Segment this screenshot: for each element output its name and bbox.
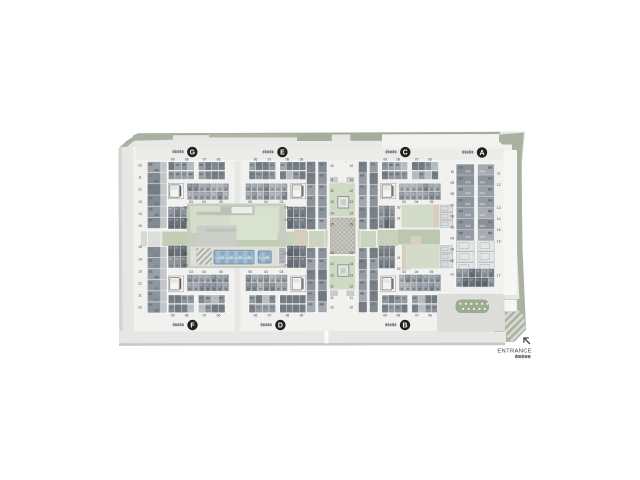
svg-text:16: 16 (497, 239, 501, 243)
svg-text:15: 15 (330, 223, 334, 227)
svg-text:14: 14 (138, 257, 142, 261)
svg-text:02: 02 (450, 259, 454, 263)
svg-text:07: 07 (268, 313, 272, 317)
svg-text:05: 05 (430, 200, 434, 204)
svg-text:06: 06 (450, 214, 454, 218)
svg-text:03: 03 (280, 270, 284, 274)
svg-text:07: 07 (203, 158, 207, 162)
svg-text:07: 07 (415, 158, 419, 162)
svg-text:13: 13 (138, 200, 142, 204)
svg-text:10: 10 (330, 306, 334, 310)
svg-text:14: 14 (349, 211, 353, 215)
svg-text:13: 13 (330, 200, 334, 204)
svg-text:15: 15 (349, 251, 353, 255)
svg-text:09: 09 (171, 313, 175, 317)
svg-text:10: 10 (349, 164, 353, 168)
svg-text:13: 13 (349, 200, 353, 204)
svg-text:14: 14 (497, 217, 501, 221)
svg-text:05: 05 (248, 270, 252, 274)
svg-text:15: 15 (497, 228, 501, 232)
svg-text:04: 04 (202, 200, 206, 204)
svg-text:07: 07 (450, 203, 454, 207)
svg-text:10: 10 (450, 170, 454, 174)
svg-text:04: 04 (415, 200, 419, 204)
svg-text:08: 08 (185, 158, 189, 162)
svg-text:02: 02 (397, 205, 401, 209)
svg-text:01: 01 (184, 218, 188, 222)
svg-text:C: C (403, 150, 408, 157)
svg-text:13: 13 (497, 206, 501, 210)
svg-text:02: 02 (184, 205, 188, 209)
svg-text:11: 11 (350, 178, 354, 182)
svg-text:12: 12 (330, 285, 334, 289)
svg-text:02: 02 (285, 263, 289, 267)
svg-text:08: 08 (286, 158, 290, 162)
svg-text:01: 01 (397, 256, 401, 260)
svg-text:09: 09 (383, 158, 387, 162)
svg-text:07: 07 (415, 313, 419, 317)
svg-text:06: 06 (254, 313, 258, 317)
svg-text:13: 13 (138, 269, 142, 273)
svg-text:11: 11 (350, 296, 354, 300)
svg-text:14: 14 (349, 262, 353, 266)
svg-text:11: 11 (330, 178, 334, 182)
svg-text:01: 01 (285, 252, 289, 256)
svg-text:D: D (278, 322, 283, 329)
svg-text:13: 13 (349, 273, 353, 277)
svg-text:ENTRANCE: ENTRANCE (497, 348, 532, 354)
svg-text:03: 03 (450, 248, 454, 252)
svg-text:08: 08 (286, 313, 290, 317)
svg-text:11: 11 (138, 294, 142, 298)
svg-text:03: 03 (402, 200, 406, 204)
svg-text:01: 01 (450, 273, 454, 277)
svg-text:10: 10 (330, 164, 334, 168)
svg-text:04: 04 (202, 270, 206, 274)
svg-text:08: 08 (396, 313, 400, 317)
svg-text:03: 03 (280, 200, 284, 204)
svg-text:05: 05 (450, 226, 454, 230)
svg-text:15: 15 (349, 223, 353, 227)
svg-text:02: 02 (397, 267, 401, 271)
svg-text:09: 09 (171, 158, 175, 162)
svg-text:12: 12 (138, 282, 142, 286)
svg-text:F: F (190, 322, 194, 329)
svg-text:01: 01 (285, 218, 289, 222)
svg-text:A: A (480, 150, 485, 157)
svg-text:11: 11 (138, 176, 142, 180)
svg-text:11: 11 (497, 172, 501, 176)
svg-text:04: 04 (415, 270, 419, 274)
svg-text:02: 02 (285, 205, 289, 209)
svg-text:03: 03 (402, 270, 406, 274)
svg-text:14: 14 (330, 211, 334, 215)
svg-text:08: 08 (396, 158, 400, 162)
svg-text:12: 12 (330, 189, 334, 193)
svg-text:15: 15 (138, 245, 142, 249)
svg-text:17: 17 (497, 274, 501, 278)
svg-text:06: 06 (428, 158, 432, 162)
svg-text:02: 02 (184, 263, 188, 267)
svg-text:08: 08 (450, 192, 454, 196)
svg-text:13: 13 (330, 273, 334, 277)
svg-text:09: 09 (383, 313, 387, 317)
svg-text:05: 05 (219, 200, 223, 204)
svg-text:04: 04 (450, 237, 454, 241)
svg-text:14: 14 (138, 212, 142, 216)
svg-text:06: 06 (428, 313, 432, 317)
svg-text:01: 01 (397, 217, 401, 221)
svg-text:05: 05 (248, 200, 252, 204)
svg-text:10: 10 (349, 306, 353, 310)
svg-text:04: 04 (264, 200, 268, 204)
svg-text:09: 09 (300, 313, 304, 317)
svg-text:05: 05 (430, 270, 434, 274)
svg-text:E: E (280, 150, 285, 157)
svg-text:04: 04 (264, 270, 268, 274)
svg-text:12: 12 (349, 285, 353, 289)
svg-text:10: 10 (138, 164, 142, 168)
svg-text:G: G (190, 149, 195, 156)
svg-text:01: 01 (184, 252, 188, 256)
svg-text:09: 09 (300, 158, 304, 162)
svg-text:11: 11 (330, 296, 334, 300)
svg-text:07: 07 (203, 313, 207, 317)
svg-text:12: 12 (497, 183, 501, 187)
svg-text:10: 10 (138, 306, 142, 310)
svg-text:03: 03 (189, 270, 193, 274)
svg-text:03: 03 (189, 200, 193, 204)
svg-text:06: 06 (217, 313, 221, 317)
svg-text:12: 12 (138, 188, 142, 192)
svg-text:15: 15 (138, 224, 142, 228)
svg-text:06: 06 (217, 158, 221, 162)
svg-text:09: 09 (450, 181, 454, 185)
svg-text:B: B (403, 322, 408, 329)
svg-text:07: 07 (268, 158, 272, 162)
svg-text:15: 15 (330, 251, 334, 255)
svg-text:14: 14 (330, 262, 334, 266)
svg-text:08: 08 (185, 313, 189, 317)
svg-text:06: 06 (254, 158, 258, 162)
svg-text:12: 12 (349, 189, 353, 193)
svg-text:05: 05 (219, 270, 223, 274)
